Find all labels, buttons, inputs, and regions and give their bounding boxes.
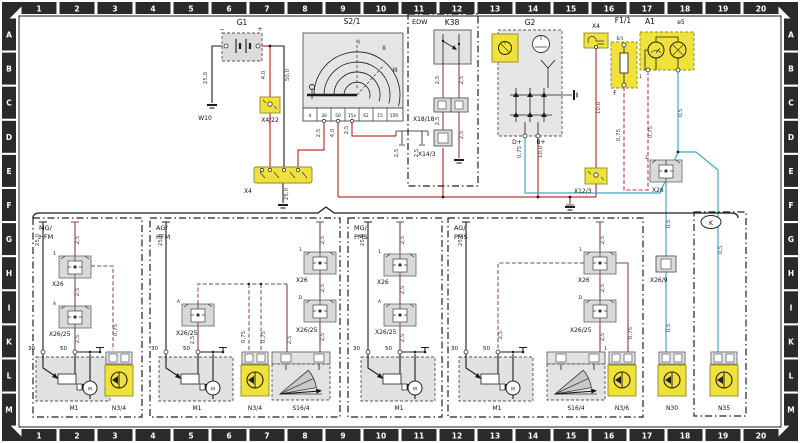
g1-label: G1 (237, 18, 248, 27)
wire-gauge-label: 25,0 (158, 233, 164, 246)
wire-gauge-label: 2,5 (435, 75, 441, 84)
wire-gauge-label: 0,75 (241, 330, 247, 343)
terminal-50: 50 (183, 346, 190, 352)
wiring-diagram-page: M 1234567891011121314151617181920 123456… (0, 0, 800, 443)
grid-col-label: 18 (680, 5, 690, 14)
m1-label: M1 (193, 405, 202, 412)
x26-right-pin: 1 (645, 155, 648, 161)
a1-pin: 1 (639, 74, 642, 80)
grid-col-label: 1 (36, 5, 41, 14)
wiring-diagram: M 1234567891011121314151617181920 123456… (0, 0, 800, 443)
section1-title2: HFM (39, 233, 53, 241)
x12-3-label: X12/3 (574, 188, 592, 195)
x26-pin: 1 (579, 247, 582, 253)
wire-gauge-label: 2,5 (75, 334, 81, 343)
grid-row-label: F (6, 201, 11, 210)
grid-col-label: 3 (112, 432, 117, 441)
x26-25d-label: X26/25 (296, 327, 318, 334)
wire-gauge-label: 25,0 (458, 233, 464, 246)
grid-row-label: M (5, 406, 12, 415)
grid-row-label: E (788, 167, 793, 176)
grid-row-label: C (788, 99, 794, 108)
grid-col-label: 15 (566, 5, 576, 14)
grid-col-label: 16 (604, 432, 614, 441)
x26-label: X26 (296, 277, 308, 284)
s2-1-pin: 15 (377, 113, 383, 119)
grid-col-label: 20 (756, 5, 766, 14)
grid-col-label: 20 (756, 432, 766, 441)
k38-label: K38 (445, 18, 460, 27)
grid-col-label: 7 (264, 5, 269, 14)
terminal-50: 50 (60, 346, 67, 352)
s16-4-label: S16/4 (567, 405, 584, 412)
grid-col-label: 6 (226, 5, 231, 14)
wire-gauge-label: 0,5 (678, 108, 684, 117)
grid-col-label: 18 (680, 432, 690, 441)
s2-1-label: S2/1 (344, 17, 361, 26)
wire-gauge-label: 0,5 (666, 323, 672, 332)
component-s2-1-ignition-switch: S2/1 I II III 4 30 50 15x 62 15 15R (303, 17, 403, 123)
g2-dplus: D+ (512, 139, 522, 146)
s2-1-pin: 4 (309, 113, 312, 119)
s2-1-pos-ii: II (382, 45, 386, 52)
grid-col-label: 2 (74, 5, 79, 14)
x26-label: X26 (52, 281, 64, 288)
grid-col-label: 16 (604, 5, 614, 14)
wire-gauge-label: 2,5 (75, 235, 81, 244)
grid-row-label: C (6, 99, 12, 108)
grid-col-label: 7 (264, 432, 269, 441)
grid-col-label: 8 (302, 5, 307, 14)
x26-pin: 1 (378, 249, 381, 255)
grid-row-label: B (6, 65, 12, 74)
wire-gauge-label: 2,5 (400, 285, 406, 294)
grid-col-label: 4 (150, 5, 155, 14)
grid-col-label: 14 (528, 432, 538, 441)
grid-col-label: 6 (226, 432, 231, 441)
grid-col-label: 10 (376, 432, 386, 441)
n30-label: N30 (666, 405, 678, 412)
grid-col-label: 11 (414, 5, 424, 14)
f1-1-pin-top: 6/1 (617, 36, 624, 42)
wire-gauge-label: 2,5 (190, 335, 196, 344)
x14-3-label: X14/3 (418, 151, 436, 158)
grid-col-label: 14 (528, 5, 538, 14)
x26-25d-pin: D (299, 295, 303, 301)
wire-gauge-label: 0,5 (718, 245, 724, 254)
wire-gauge-label: 2,5 (320, 235, 326, 244)
wire-gauge-label: 2,5 (600, 283, 606, 292)
s2-1-pos-iii: III (392, 67, 398, 74)
grid-col-label: 17 (642, 432, 652, 441)
wire-gauge-label: 2,5 (287, 335, 293, 344)
wire-gauge-label: 10,0 (538, 145, 544, 158)
grid-row-label: H (6, 269, 12, 278)
n3-6-pin: 1 (604, 346, 607, 352)
grid-row-label: L (7, 372, 12, 381)
grid-row-label: I (790, 303, 793, 312)
s2-1-pin: 50 (335, 113, 341, 119)
s2-1-pin: 15x (348, 113, 356, 119)
wire-gauge-label: 2,5 (600, 235, 606, 244)
grid-row-label: A (6, 31, 12, 40)
wire-gauge-label: 2,5 (75, 287, 81, 296)
s2-1-pos-i: I (358, 39, 360, 46)
grid-col-label: 15 (566, 432, 576, 441)
wire-gauge-label: 2,5 (320, 332, 326, 341)
grid-col-label: 10 (376, 5, 386, 14)
m1-label: M1 (493, 405, 502, 412)
g1-minus: − (219, 26, 224, 33)
grid-col-label: 17 (642, 5, 652, 14)
terminal-50: 50 (483, 346, 490, 352)
wire-gauge-label: 4,0 (330, 128, 336, 137)
n3-4-label: N3/4 (112, 405, 126, 412)
s16-4-label: S16/4 (292, 405, 309, 412)
wire-gauge-label: 2,5 (400, 235, 406, 244)
g2-label: G2 (525, 18, 536, 27)
m1-label: M1 (395, 405, 404, 412)
wire-gauge-label: 2,5 (344, 125, 350, 134)
grid-col-label: 11 (414, 432, 424, 441)
x4-top-label: X4 (592, 23, 600, 30)
grid-col-label: 9 (340, 432, 345, 441)
x26-pin: 1 (299, 247, 302, 253)
grid-col-label: 12 (452, 5, 462, 14)
w10-label: W10 (198, 115, 212, 122)
wire-gauge-label: 0,75 (517, 145, 523, 158)
component-x4-22: X4/22 (260, 97, 280, 124)
terminal-30: 30 (151, 346, 158, 352)
grid-col-label: 5 (188, 432, 193, 441)
wire-gauge-label: 2,5 (394, 148, 400, 157)
wire-gauge-label: 25,0 (360, 233, 366, 246)
wire-gauge-label: 25,0 (35, 233, 41, 246)
grid-col-label: 5 (188, 5, 193, 14)
f1-1-pin-bottom: F (613, 90, 617, 97)
s2-1-pin: 62 (363, 113, 369, 119)
grid-col-label: 2 (74, 432, 79, 441)
s2-1-pin: 30 (321, 113, 327, 119)
grid-col-label: 19 (718, 432, 728, 441)
wire-gauge-label: 0,75 (648, 125, 654, 138)
grid-col-label: 3 (112, 5, 117, 14)
grid-row-label: B (788, 65, 794, 74)
grid-row-label: D (788, 133, 794, 142)
wire-gauge-label: 0,75 (616, 128, 622, 141)
wire-gauge-label: 2,5 (459, 75, 465, 84)
grid-col-label: 4 (150, 432, 155, 441)
n35-label: N35 (718, 405, 730, 412)
wire-gauge-label: 0,75 (261, 330, 267, 343)
grid-row-label: M (787, 406, 794, 415)
grid-col-label: 8 (302, 432, 307, 441)
x26-label: X26 (377, 279, 389, 286)
n3-6-label: N3/6 (615, 405, 629, 412)
wire-gauge-label: 25,0 (203, 71, 209, 84)
x26-right-label: X26 (652, 187, 664, 194)
grid-row-label: F (788, 201, 793, 210)
wire-gauge-label: 2,5 (320, 283, 326, 292)
grid-col-label: 12 (452, 432, 462, 441)
terminal-30: 30 (28, 346, 35, 352)
x26-25-label: X26/25 (49, 331, 71, 338)
wire-gauge-label: 50,0 (285, 68, 291, 81)
wire-gauge-label: 2,5 (459, 130, 465, 139)
terminal-50: 50 (385, 346, 392, 352)
x4-bus-label: X4 (244, 188, 252, 195)
g1-plus: + (257, 26, 262, 33)
grid-row-label: D (6, 133, 12, 142)
grid-col-label: 9 (340, 5, 345, 14)
g2-bplus: B+ (536, 139, 545, 146)
wire-gauge-label: 2,5 (600, 332, 606, 341)
f1-1-label: F1/1 (615, 16, 632, 25)
wire-gauge-label: 2,5 (414, 148, 420, 157)
section4-title: AG/ (454, 224, 466, 232)
terminal-30: 30 (451, 346, 458, 352)
section3-title: MG/ (354, 224, 368, 232)
wire-gauge-label: 25,0 (284, 187, 290, 200)
edw-label: EDW (412, 18, 428, 26)
grid-row-label: H (788, 269, 794, 278)
grid-row-label: E (6, 167, 11, 176)
s2-1-pin: 15R (390, 113, 398, 119)
n3-4-label: N3/4 (248, 405, 262, 412)
grid-col-label: 13 (490, 432, 500, 441)
x4-22-label: X4/22 (261, 117, 279, 124)
wire-gauge-label: 10,0 (596, 101, 602, 114)
x26-9-label: X26/9 (650, 277, 668, 284)
a1-sub-label: e5 (677, 19, 685, 26)
wire-gauge-label: 2,5 (435, 116, 441, 125)
grid-row-label: L (789, 372, 794, 381)
grid-col-label: 1 (36, 432, 41, 441)
wire-gauge-label: 2,5 (316, 128, 322, 137)
x26-25-label: X26/25 (570, 327, 592, 334)
wire-gauge-label: 4,0 (261, 70, 267, 79)
x26-25-pin: D (579, 295, 583, 301)
a1-label: A1 (645, 17, 655, 26)
x26-label: X26 (578, 277, 590, 284)
wire-gauge-label: 2,5 (498, 330, 504, 339)
x26-25-label: X26/25 (375, 329, 397, 336)
grid-row-label: G (788, 235, 794, 244)
x26-pin: 1 (53, 251, 56, 257)
terminal-30: 30 (353, 346, 360, 352)
grid-col-label: 19 (718, 5, 728, 14)
wire-gauge-label: 0,75 (628, 326, 634, 339)
m1-label: M1 (70, 405, 79, 412)
grid-row-label: I (8, 303, 11, 312)
section1-title: MG/ (39, 224, 53, 232)
grid-row-label: A (788, 31, 794, 40)
grid-col-label: 13 (490, 5, 500, 14)
wire-gauge-label: 0,5 (666, 219, 672, 228)
x18-18-label: X18/18 (413, 116, 435, 123)
wire-gauge-label: 2,5 (400, 333, 406, 342)
grid-row-label: G (6, 235, 12, 244)
wire-gauge-label: 0,75 (113, 323, 119, 336)
